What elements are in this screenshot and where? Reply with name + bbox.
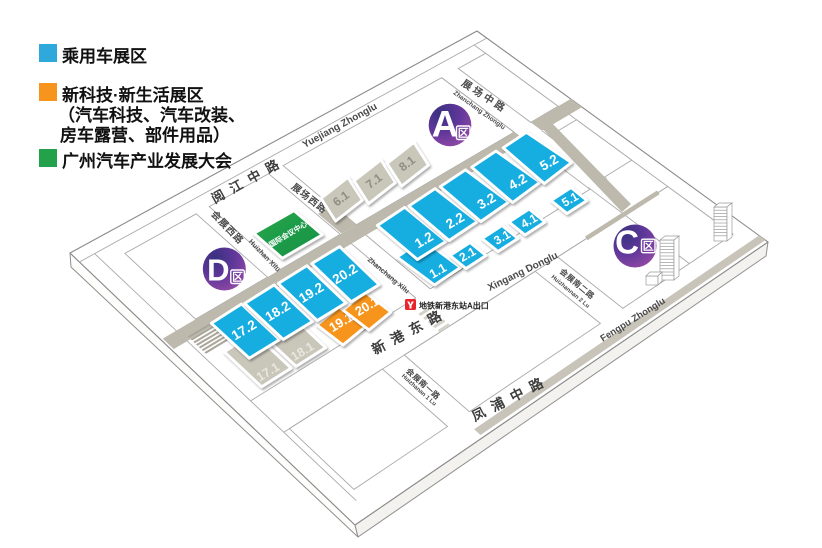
svg-text:区: 区 [643,240,654,253]
svg-text:区: 区 [458,126,469,139]
svg-text:区: 区 [232,270,243,283]
svg-text:D: D [207,253,229,288]
svg-text:地铁新港东站A出口: 地铁新港东站A出口 [419,301,489,311]
svg-text:C: C [615,224,639,261]
svg-text:A: A [432,104,459,145]
